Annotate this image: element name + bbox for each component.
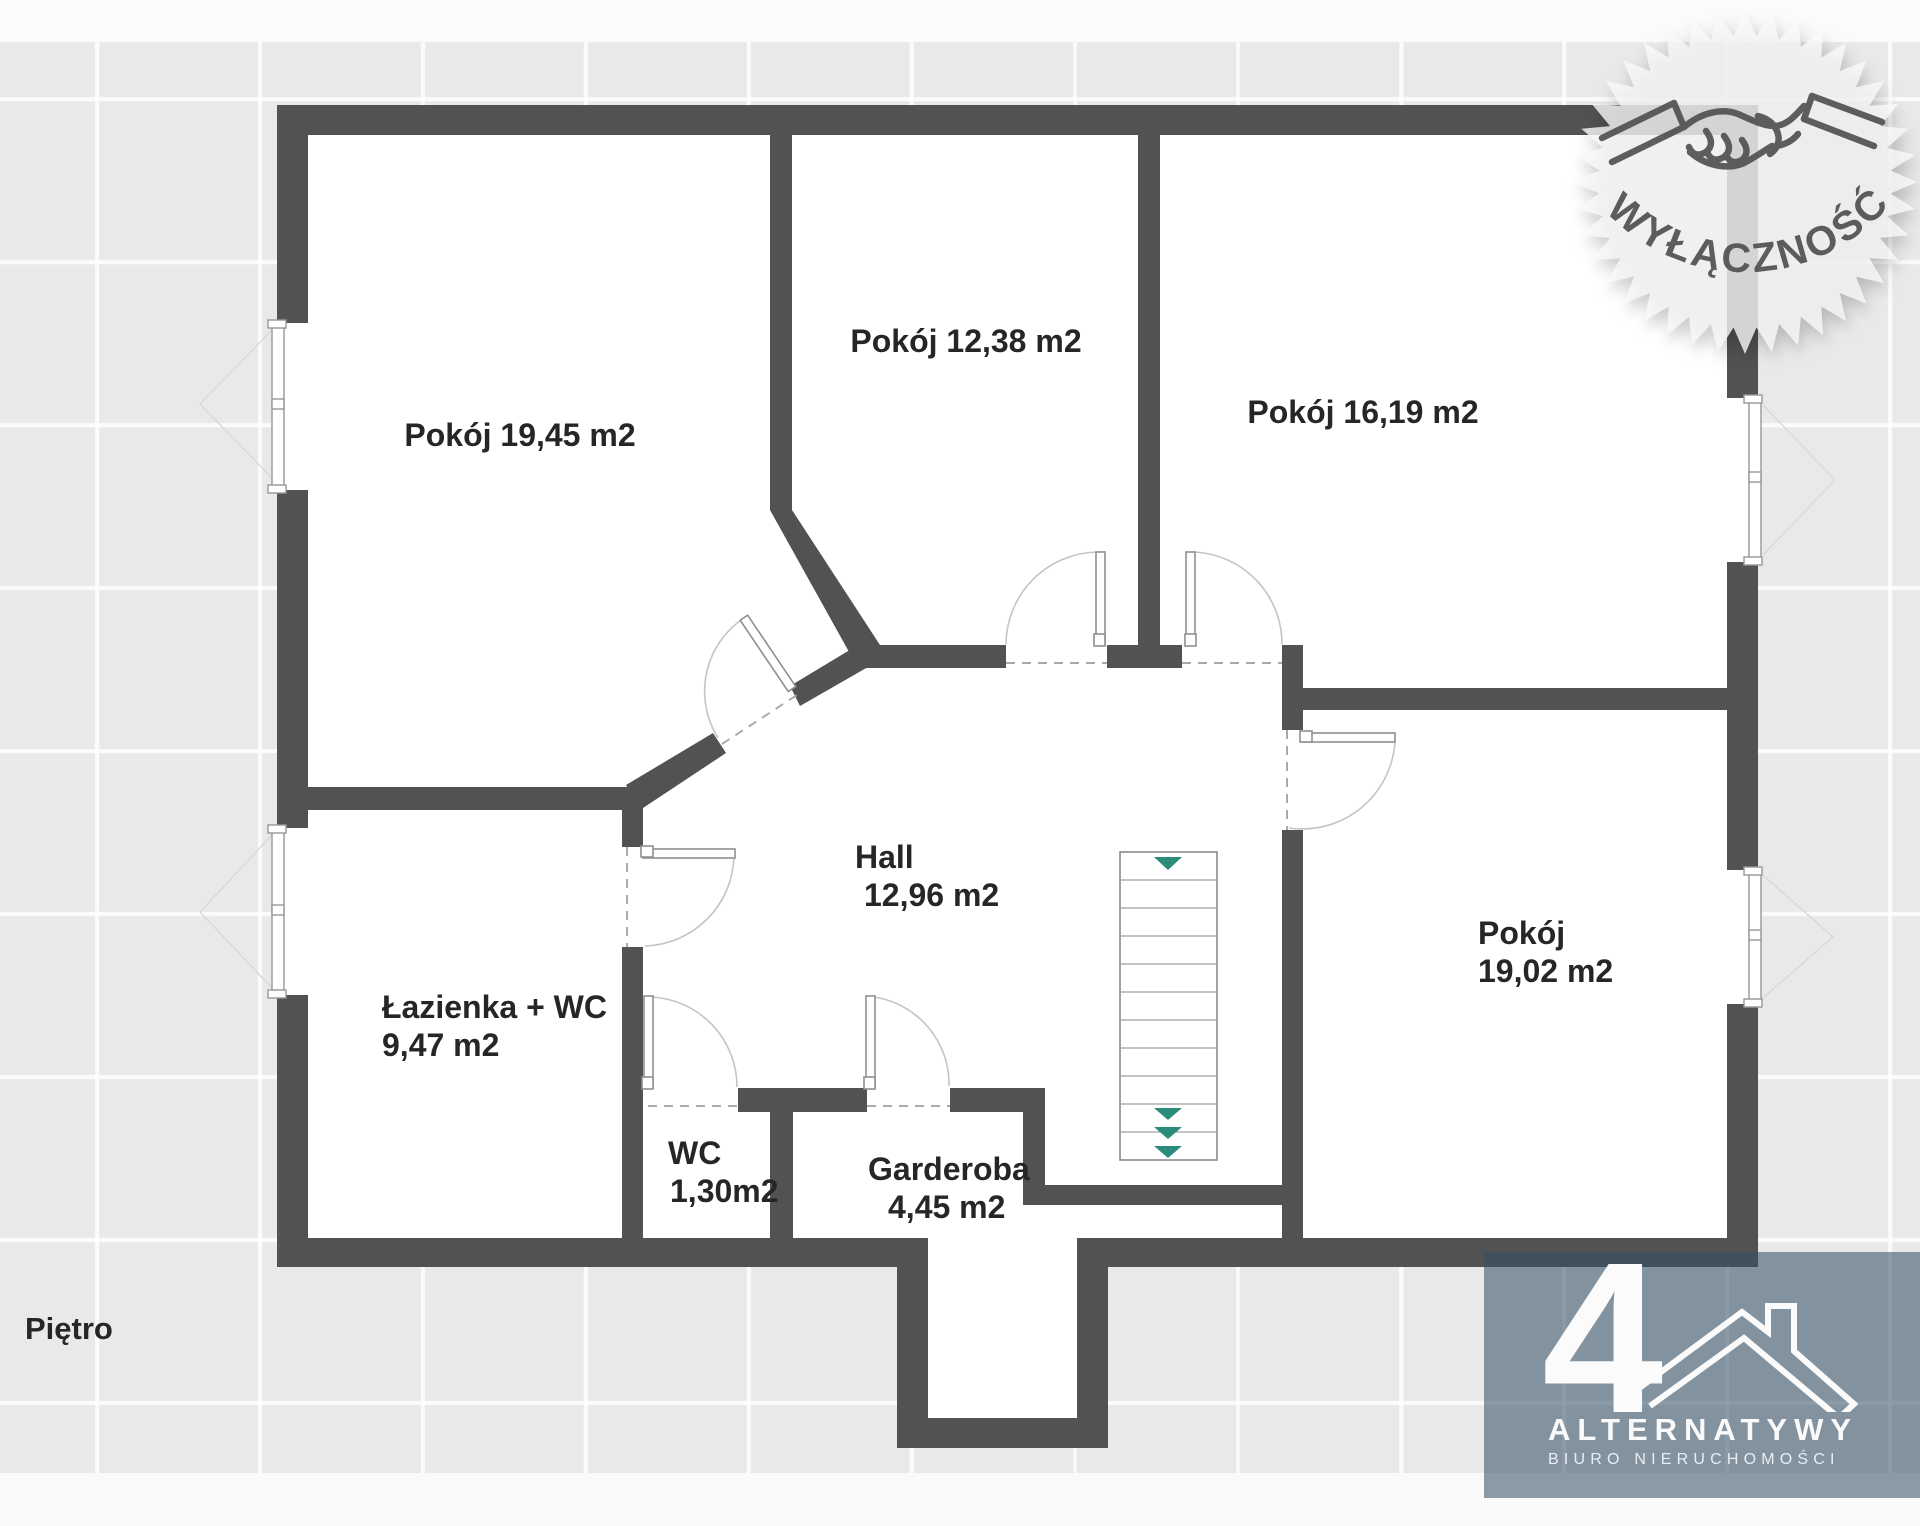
floor-area <box>293 120 1742 1433</box>
window-right-top <box>1727 395 1835 565</box>
window-left-top <box>200 320 308 493</box>
wall-segment <box>279 105 1758 135</box>
floorplan-page: WYŁĄCZNOŚĆ Pokój 19,45 m2 Pokój 12,38 m2… <box>0 0 1920 1526</box>
room-label-pokoj-12-38: Pokój 12,38 m2 <box>850 324 1081 359</box>
wall-segment <box>277 1238 928 1267</box>
room-label-wc-area: 1,30m2 <box>670 1174 779 1209</box>
room-label-pokoj-19-45: Pokój 19,45 m2 <box>404 418 635 453</box>
house-roof-icon <box>1634 1306 1854 1412</box>
room-label-pokoj-19-02-name: Pokój <box>1478 916 1565 951</box>
wall-segment <box>770 1100 793 1238</box>
room-label-pokoj-16-19: Pokój 16,19 m2 <box>1247 395 1478 430</box>
wall-segment <box>277 105 308 1267</box>
floor-title: Piętro <box>25 1312 113 1346</box>
agency-logo-overlay: 4 ALTERNATYWY BIURO NIERUCHOMOŚCI <box>1484 1252 1920 1498</box>
wall-segment <box>308 787 632 810</box>
entry-corridor-floor <box>928 1205 1077 1433</box>
wall-segment <box>858 645 1006 668</box>
room-label-hall-area: 12,96 m2 <box>864 878 999 913</box>
room-label-pokoj-19-02-area: 19,02 m2 <box>1478 954 1613 989</box>
room-label-garderoba-area: 4,45 m2 <box>888 1190 1005 1225</box>
window-right-bottom <box>1727 867 1833 1007</box>
logo-number-4: 4 <box>1542 1252 1663 1412</box>
logo-brand-text: ALTERNATYWY <box>1548 1412 1858 1448</box>
agency-logo-mark: 4 <box>1484 1252 1920 1412</box>
room-label-hall-name: Hall <box>855 840 914 875</box>
wall-segment <box>738 1088 867 1112</box>
wall-segment <box>950 1088 1045 1112</box>
staircase <box>1120 852 1217 1160</box>
logo-subtitle-text: BIURO NIERUCHOMOŚCI <box>1548 1451 1840 1469</box>
wall-segment <box>622 947 643 1238</box>
wall-segment <box>1303 688 1727 710</box>
wall-segment <box>1282 645 1303 730</box>
wall-segment <box>1138 135 1160 668</box>
room-label-lazienka-area: 9,47 m2 <box>382 1028 499 1063</box>
room-label-garderoba-name: Garderoba <box>868 1152 1030 1187</box>
wall-segment <box>1077 1238 1108 1448</box>
wall-segment <box>1045 1185 1283 1205</box>
wall-segment <box>770 135 792 510</box>
wall-segment <box>1282 830 1303 1238</box>
wall-segment <box>897 1418 1108 1448</box>
window-left-bottom <box>200 825 308 998</box>
wall-segment <box>897 1238 928 1448</box>
wall-segment <box>622 787 643 847</box>
watermark-badge: WYŁĄCZNOŚĆ <box>1573 10 1917 354</box>
room-label-wc-name: WC <box>668 1136 721 1171</box>
room-label-lazienka-name: Łazienka + WC <box>382 990 607 1025</box>
